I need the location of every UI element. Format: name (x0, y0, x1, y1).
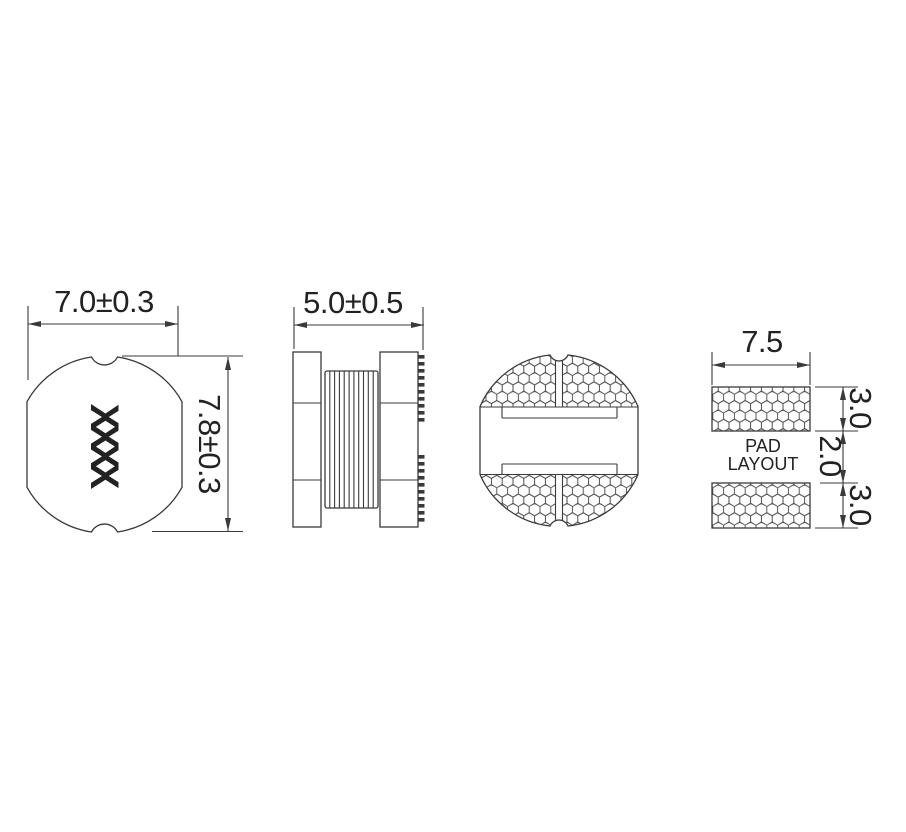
solder-pad-bottom (712, 483, 810, 528)
flange-outline (293, 352, 321, 527)
side-view-width-dimension: 5.0±0.5 (294, 285, 424, 350)
top-view: XXXX 7.0±0.3 7.8±0.3 (27, 284, 243, 532)
core-flange-right (380, 352, 422, 527)
side-view: 5.0±0.5 (293, 285, 424, 527)
coil-winding (325, 371, 378, 508)
dimension-text-width: 5.0±0.5 (303, 285, 403, 320)
part-marking: XXXX (82, 404, 126, 490)
dimension-text-pad-width: 7.5 (741, 324, 783, 359)
solder-pad-top (712, 387, 810, 431)
pad-hex-pattern (712, 387, 810, 431)
dimension-text-width: 7.0±0.3 (54, 284, 154, 319)
pad-width-dimension: 7.5 (712, 324, 810, 385)
dimension-text-top-pad-height: 3.0 (843, 387, 878, 429)
dimension-text-gap: 2.0 (813, 435, 848, 477)
inductor-technical-drawing: XXXX 7.0±0.3 7.8±0.3 (0, 0, 906, 832)
flange-outline (380, 352, 418, 527)
pad-layout-label-line2: LAYOUT (728, 454, 799, 474)
top-view-width-dimension: 7.0±0.3 (28, 284, 178, 380)
dimension-text-bottom-pad-height: 3.0 (843, 484, 878, 526)
pad-vertical-dimensions: 3.0 2.0 3.0 (813, 387, 878, 528)
electrode-areas (470, 350, 648, 531)
drawing-canvas: XXXX 7.0±0.3 7.8±0.3 (0, 0, 906, 832)
winding-block (325, 371, 378, 508)
terminal-edge-rect-top (502, 407, 617, 418)
core-flange-left (293, 352, 321, 527)
pad-hex-pattern (712, 483, 810, 528)
bottom-view (470, 350, 648, 531)
terminal-edge-rect-bottom (502, 464, 617, 475)
dimension-text-height: 7.8±0.3 (192, 394, 227, 494)
pad-layout: PAD LAYOUT 7.5 3.0 2.0 3.0 (712, 324, 878, 528)
pad-layout-label-line1: PAD (745, 436, 781, 456)
